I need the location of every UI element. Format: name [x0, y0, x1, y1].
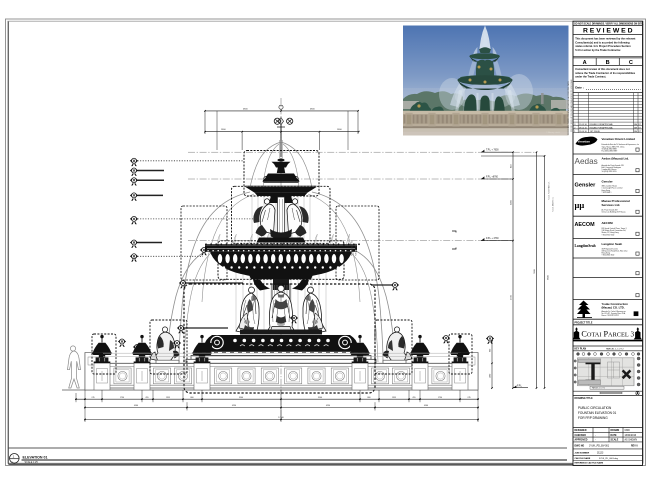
svg-text:Venetian Orient Limited: Venetian Orient Limited: [602, 137, 636, 141]
svg-text:AECOM: AECOM: [575, 222, 596, 228]
svg-text:China Law Building 21/F, Macau: China Law Building 21/F, Macau: [602, 212, 626, 214]
svg-text:455: 455: [412, 397, 415, 399]
svg-text:ISSUED FOR APPROVAL: ISSUED FOR APPROVAL: [590, 127, 614, 130]
svg-text:F.P.L +6760: F.P.L +6760: [486, 176, 499, 178]
svg-text:900: 900: [490, 349, 492, 352]
svg-text:REFERENCE CAD FILE NAME: REFERENCE CAD FILE NAME: [575, 462, 604, 465]
svg-text:840: 840: [511, 164, 513, 168]
svg-text:under the Trade Contract.: under the Trade Contract.: [575, 75, 606, 79]
svg-text:FRP PANEL TO BE: FRP PANEL TO BE: [351, 240, 354, 256]
svg-text:This document has been reviewe: This document has been reviewed by the r…: [575, 37, 635, 41]
svg-text:T 852.3922 9000: T 852.3922 9000: [602, 234, 615, 236]
svg-text:Services Ltd.: Services Ltd.: [602, 203, 621, 207]
svg-text:1800: 1800: [337, 129, 342, 131]
svg-text:T.P.L + 7600: T.P.L + 7600: [486, 150, 499, 152]
svg-text:5.4 for action by the Trade Co: 5.4 for action by the Trade Contractor.: [575, 48, 621, 52]
svg-text:DRAWING TITLE: DRAWING TITLE: [575, 397, 594, 400]
svg-text:Gensler: Gensler: [575, 182, 597, 188]
svg-text:1790: 1790: [120, 397, 124, 399]
svg-text:4800: 4800: [310, 109, 315, 111]
svg-text:SCALE: SCALE: [611, 439, 619, 442]
svg-text:T 852.2830 3500: T 852.2830 3500: [602, 255, 615, 257]
svg-text:CAD FILE NAME: CAD FILE NAME: [575, 457, 591, 460]
svg-text:REV 0: REV 0: [631, 445, 638, 447]
svg-text:FOR FRP MOCK UP COLOUR AND FIN: FOR FRP MOCK UP COLOUR AND FINISH REFER …: [570, 79, 573, 132]
svg-text:DATE: DATE: [611, 434, 618, 437]
svg-text:860: 860: [190, 397, 193, 399]
svg-text:1: 1: [13, 455, 15, 459]
svg-text:KEY PLAN: KEY PLAN: [575, 348, 587, 351]
svg-text:12.05.16: 12.05.16: [579, 124, 588, 126]
svg-text:3YUK_PD_0001.dwg: 3YUK_PD_0001.dwg: [599, 458, 618, 460]
svg-text:4560: 4560: [424, 405, 428, 407]
svg-text:Consultants(s) and is accorded: Consultants(s) and is accorded the follo…: [575, 40, 630, 44]
svg-text:9800: 9800: [548, 275, 550, 280]
svg-text:13.04.16: 13.04.16: [579, 131, 588, 133]
svg-text:AS SHOWN: AS SHOWN: [625, 439, 638, 442]
svg-text:DRAWN: DRAWN: [611, 429, 620, 432]
svg-text:Date :: Date :: [575, 86, 584, 90]
svg-text:860: 860: [367, 397, 370, 399]
svg-text:1800: 1800: [221, 129, 226, 131]
svg-text:© Alamy stock: © Alamy stock: [546, 131, 561, 134]
svg-text:Tel (853) 2833 1055: Tel (853) 2833 1055: [602, 171, 617, 173]
svg-text:4230: 4230: [326, 405, 330, 407]
svg-text:FOR FRP DRAWING: FOR FRP DRAWING: [578, 416, 608, 420]
svg-text:PROJECT TITLE: PROJECT TITLE: [575, 323, 593, 325]
svg-text:-: -: [12, 459, 13, 463]
svg-text:Fax (853) 2882 8889: Fax (853) 2882 8889: [602, 151, 618, 153]
svg-text:status referral. In b Project: status referral. In b Project Procedure …: [575, 44, 631, 48]
svg-text:1790: 1790: [438, 397, 442, 399]
svg-text:4230: 4230: [232, 405, 236, 407]
svg-text:13/04/2016: 13/04/2016: [625, 435, 637, 437]
svg-text:4560: 4560: [134, 405, 138, 407]
svg-text:1ST ISSUE: 1ST ISSUE: [590, 131, 601, 133]
svg-text:SCALE 1:25: SCALE 1:25: [25, 461, 39, 464]
svg-text:DO NOT SCALE DRAWINGS. VERIFY: DO NOT SCALE DRAWINGS. VERIFY ALL DIMENS…: [574, 23, 644, 26]
svg-text:T.O.W. FOUNTAIN LVL: T.O.W. FOUNTAIN LVL: [548, 181, 551, 200]
svg-text:Gensler: Gensler: [602, 179, 614, 183]
svg-text:LangdonSeah: LangdonSeah: [575, 244, 596, 248]
svg-text:JOB NUMBER: JOB NUMBER: [575, 452, 590, 454]
svg-text:(Macau) CO. LTD.: (Macau) CO. LTD.: [602, 305, 625, 309]
svg-text:3540: 3540: [239, 397, 243, 399]
svg-text:REFERENCE PHOTO - FOUNTAIN PLA: REFERENCE PHOTO - FOUNTAIN PLACE DE LA C…: [567, 80, 570, 135]
svg-text:4730: 4730: [511, 295, 513, 300]
svg-text:relieve the Trade Contractor o: relieve the Trade Contractor of its resp…: [575, 71, 636, 75]
svg-text:PARCEL 1 LOT 2: PARCEL 1 LOT 2: [592, 387, 605, 390]
svg-text:1355: 1355: [166, 397, 170, 399]
svg-text:7600: 7600: [534, 269, 536, 274]
svg-text:745: 745: [91, 397, 94, 399]
svg-text:R E V I E W E D: R E V I E W E D: [583, 28, 633, 35]
svg-text:FOUNTAIN ELEVATION 01: FOUNTAIN ELEVATION 01: [578, 411, 616, 415]
svg-text:Aedas (Macau) Ltd.: Aedas (Macau) Ltd.: [602, 156, 630, 160]
svg-text:28.04.16: 28.04.16: [579, 128, 588, 130]
svg-text:PUBLIC CIRCULATION: PUBLIC CIRCULATION: [578, 406, 612, 410]
svg-text:T.O.W. BASIN LVL: T.O.W. BASIN LVL: [552, 197, 555, 212]
svg-text:F.P.L + 4730: F.P.L + 4730: [486, 238, 499, 240]
svg-text:1080: 1080: [490, 374, 492, 378]
svg-text:DESIGNED: DESIGNED: [575, 430, 587, 432]
svg-text:Langdon Seah: Langdon Seah: [602, 242, 623, 246]
svg-text:3YUK_PD_BV-001: 3YUK_PD_BV-001: [589, 444, 610, 447]
svg-text:3540: 3540: [318, 397, 322, 399]
svg-text:FIXED ON SITE: FIXED ON SITE: [356, 242, 358, 256]
svg-text:AECOM: AECOM: [602, 221, 614, 225]
svg-text:Consultant review of this docu: Consultant review of this document does …: [575, 67, 630, 71]
svg-text:T 852.2868 1: T 852.2868 1: [602, 192, 612, 194]
svg-text:CHECKED: CHECKED: [575, 435, 587, 437]
svg-text:COTAI PARCEL 3: COTAI PARCEL 3: [581, 329, 634, 338]
svg-text:APPROVED: APPROVED: [575, 439, 588, 442]
svg-text:31123: 31123: [597, 452, 604, 454]
svg-text:PARCEL 1, LOT 2: PARCEL 1, LOT 2: [606, 348, 624, 351]
svg-text:745: 745: [467, 397, 470, 399]
svg-text:Aedas: Aedas: [575, 157, 598, 166]
svg-text:Venetian: Venetian: [578, 140, 591, 144]
svg-text:17580: 17580: [278, 417, 284, 419]
svg-text:DWG NO: DWG NO: [575, 445, 585, 447]
svg-text:455: 455: [145, 397, 148, 399]
svg-text:μμ: μμ: [575, 200, 585, 210]
svg-text:3030: 3030: [511, 200, 513, 205]
svg-text:Macau T 853.2875 3322: Macau T 853.2875 3322: [602, 315, 619, 317]
svg-text:ELEVATION 01: ELEVATION 01: [23, 456, 48, 460]
svg-text:4800: 4800: [243, 109, 248, 111]
svg-text:1355: 1355: [392, 397, 396, 399]
svg-text:CMD: CMD: [625, 430, 631, 432]
